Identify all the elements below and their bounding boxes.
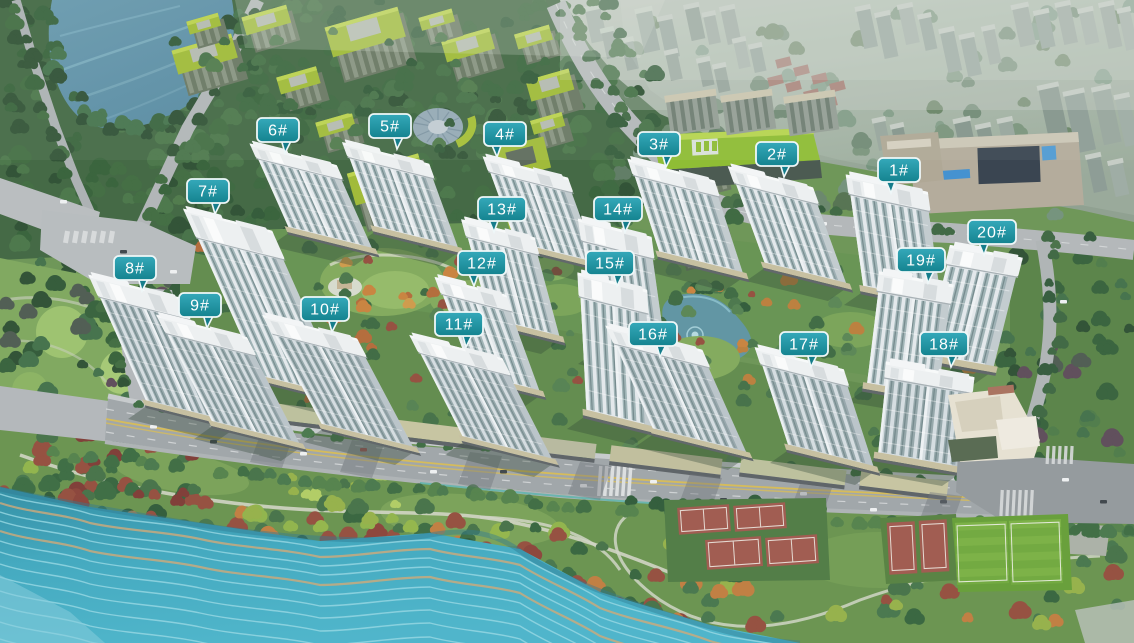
svg-text:1#: 1# [889, 163, 909, 180]
